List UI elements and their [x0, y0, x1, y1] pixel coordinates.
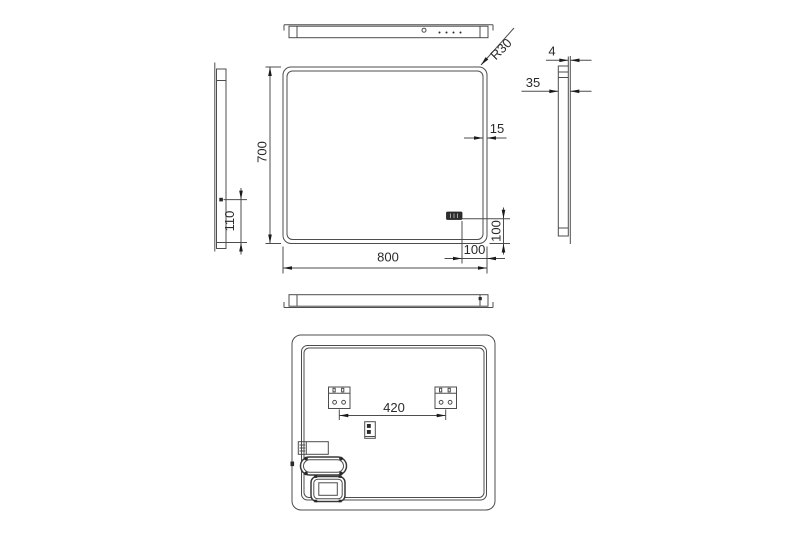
dim-label-sensor-height: 110: [222, 211, 237, 232]
dim-bracket-spacing: 420: [339, 400, 445, 420]
junction-box: [301, 457, 347, 475]
top-view: [284, 25, 493, 38]
mounting-bracket-left: [329, 387, 351, 409]
dim-led-border: 15: [464, 121, 507, 140]
mounting-bracket-right: [435, 387, 457, 409]
dim-corner-radius: R30: [481, 28, 515, 65]
dim-label-radius: R30: [487, 35, 514, 62]
dim-label-frame-depth: 35: [526, 75, 540, 90]
info-label: [298, 442, 328, 455]
dim-frame-depth: 35: [522, 75, 592, 93]
front-view: [283, 67, 487, 244]
indicator-dots: [439, 32, 462, 34]
driver-box: [311, 475, 345, 502]
dim-label-glass-thickness: 4: [548, 44, 555, 59]
dim-label-switch-right: 100: [464, 242, 486, 257]
bottom-view: [284, 295, 493, 308]
dim-label-width: 800: [377, 250, 399, 265]
dim-mirror-width: 800: [283, 247, 487, 274]
touch-switch-bottom-dot: [479, 297, 482, 300]
terminal-block: [365, 422, 376, 439]
dim-label-bracket-spacing: 420: [383, 400, 405, 415]
dim-label-switch-bottom: 100: [489, 220, 504, 242]
right-side-view: [558, 56, 570, 244]
sensor-window-circle: [422, 28, 426, 32]
technical-drawing: 700 800 R30 15 100 100: [0, 0, 800, 533]
back-view: 420: [291, 335, 496, 510]
touch-switch: [447, 212, 463, 220]
cable-entry-mark: [291, 462, 295, 467]
dim-label-led-border: 15: [490, 121, 504, 136]
dim-mirror-height: 700: [255, 67, 282, 244]
dim-label-height: 700: [255, 141, 270, 163]
drawing-sheet: 700 800 R30 15 100 100: [0, 0, 800, 533]
touch-sensor-side-dot: [219, 198, 223, 202]
